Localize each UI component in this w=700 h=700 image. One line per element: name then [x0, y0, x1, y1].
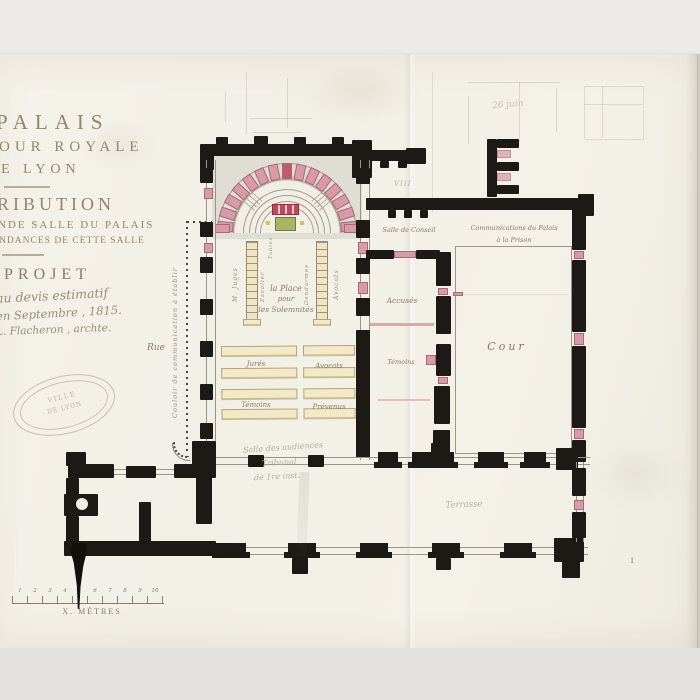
wall-pier — [200, 257, 213, 273]
scale-tick-number: 3 — [45, 588, 55, 594]
wall-pier — [572, 468, 586, 496]
wall-pier — [200, 384, 213, 400]
wall-tooth — [380, 161, 389, 168]
wall-pier — [572, 512, 586, 538]
bench-row — [221, 345, 297, 357]
bench-label-temoins: Témoins — [224, 401, 288, 409]
stair-pink-fill — [497, 173, 511, 181]
pink-door — [394, 251, 416, 258]
pink-door — [574, 333, 584, 345]
pencil-bleed-line — [457, 294, 569, 295]
inner-wall-pier — [436, 296, 451, 334]
vestibule-pier — [504, 543, 532, 558]
wall-pilaster — [254, 136, 268, 145]
wall-pier — [356, 298, 370, 316]
wall-pier — [200, 222, 213, 237]
inner-wall-pier — [434, 386, 450, 424]
wall-extension-end — [406, 148, 426, 164]
right-outer-wall — [572, 260, 586, 332]
wall-pilaster — [332, 137, 344, 145]
hall-right-wall-solid — [356, 330, 370, 458]
stair-tooth — [497, 139, 519, 148]
inner-wall-pier — [436, 252, 451, 286]
colonnade-pier — [308, 455, 324, 467]
colonnade-pier — [378, 452, 398, 468]
pink-door — [574, 500, 584, 510]
wall-pier — [200, 299, 213, 315]
stair-tooth — [497, 185, 519, 194]
pink-construction-line — [370, 323, 434, 326]
page-number: 1 — [630, 556, 634, 565]
room-label-salle-conseil: Salle de Conseil — [374, 226, 444, 234]
column-hole — [76, 498, 88, 510]
wall-stub — [292, 558, 308, 574]
scale-tick-number: 7 — [105, 588, 115, 594]
pink-masonry — [438, 377, 448, 384]
wall-tooth — [420, 210, 428, 218]
colonnade-pier — [478, 452, 504, 468]
bench-row — [222, 408, 298, 420]
annex-pier — [126, 466, 156, 478]
wall-tooth — [388, 210, 396, 218]
colonnade-stub — [431, 443, 446, 454]
pink-door — [574, 429, 584, 439]
bench-group — [0, 0, 700, 700]
pink-door — [426, 355, 436, 365]
pink-masonry — [438, 288, 448, 295]
scale-bar — [12, 596, 164, 604]
stair-wall — [487, 139, 497, 197]
scale-label: X. MÈTRES — [52, 607, 132, 616]
annex-inner-wall — [196, 464, 212, 524]
bench-label-prevenus: Prévenus — [304, 403, 354, 411]
vestibule-pier — [360, 543, 388, 558]
wall-pier — [200, 423, 213, 439]
partition-wall — [366, 250, 394, 259]
wall-pier — [200, 341, 213, 357]
scanned-plan-page: 26 juin VIII PALAIS COUR ROYALE DE LYON … — [0, 0, 700, 700]
vestibule-pier — [216, 543, 246, 558]
right-outer-wall — [572, 346, 586, 428]
scale-tick-number: 2 — [30, 588, 40, 594]
hall-top-wall — [202, 144, 372, 156]
scale-tick-number: 6 — [90, 588, 100, 594]
wall-pier — [356, 220, 370, 238]
wall-stub — [562, 560, 580, 578]
pink-door — [574, 251, 584, 259]
bench-row — [221, 367, 297, 379]
pink-construction-line — [378, 399, 430, 401]
wall-tooth — [398, 161, 407, 168]
annex-left-wall — [66, 516, 79, 544]
annex-top-wall — [366, 198, 586, 210]
room-label-accuses: Accusés — [370, 296, 434, 305]
pencil-note-line2: Tribunal — [262, 457, 297, 468]
label-communications-1: Communications du Palais — [455, 224, 573, 232]
scale-tick-number: 10 — [148, 588, 162, 594]
wall-pilaster — [294, 137, 306, 145]
scale-tick-number: 4 — [60, 588, 70, 594]
annex-inner-wall — [139, 502, 151, 544]
bench-row — [303, 388, 355, 399]
stair-tooth — [497, 162, 519, 171]
wall-pilaster — [216, 137, 228, 145]
right-outer-wall — [572, 204, 586, 250]
room-label-temoins: Témoins — [372, 358, 430, 366]
stair-pink-fill — [497, 150, 511, 158]
colonnade-corner-block — [556, 448, 578, 470]
vestibule-pier — [432, 543, 460, 558]
wall-pier — [356, 258, 370, 274]
wall-tooth — [404, 210, 412, 218]
bench-label-avocats: Avocats — [306, 362, 352, 370]
colonnade-pier — [524, 452, 546, 468]
pink-masonry — [204, 188, 213, 199]
label-communications-2: à la Prison — [470, 236, 558, 244]
room-label-cour: Cour — [487, 340, 527, 353]
scale-tick-number: 1 — [15, 588, 25, 594]
wall-stub — [436, 558, 451, 570]
pink-masonry — [358, 282, 368, 294]
bench-label-jures: Jurés — [226, 360, 286, 368]
colonnade-pier-junction — [412, 452, 454, 468]
bench-row — [303, 345, 355, 356]
pink-masonry — [453, 292, 463, 296]
wall-pier — [356, 168, 370, 184]
pink-masonry — [204, 243, 213, 253]
inner-wall-pier — [436, 344, 451, 376]
bench-row — [221, 388, 297, 400]
wall-pier — [200, 168, 213, 183]
scale-tick-number: 9 — [135, 588, 145, 594]
scale-tick-number: 8 — [120, 588, 130, 594]
annex-top-wall — [68, 464, 114, 478]
